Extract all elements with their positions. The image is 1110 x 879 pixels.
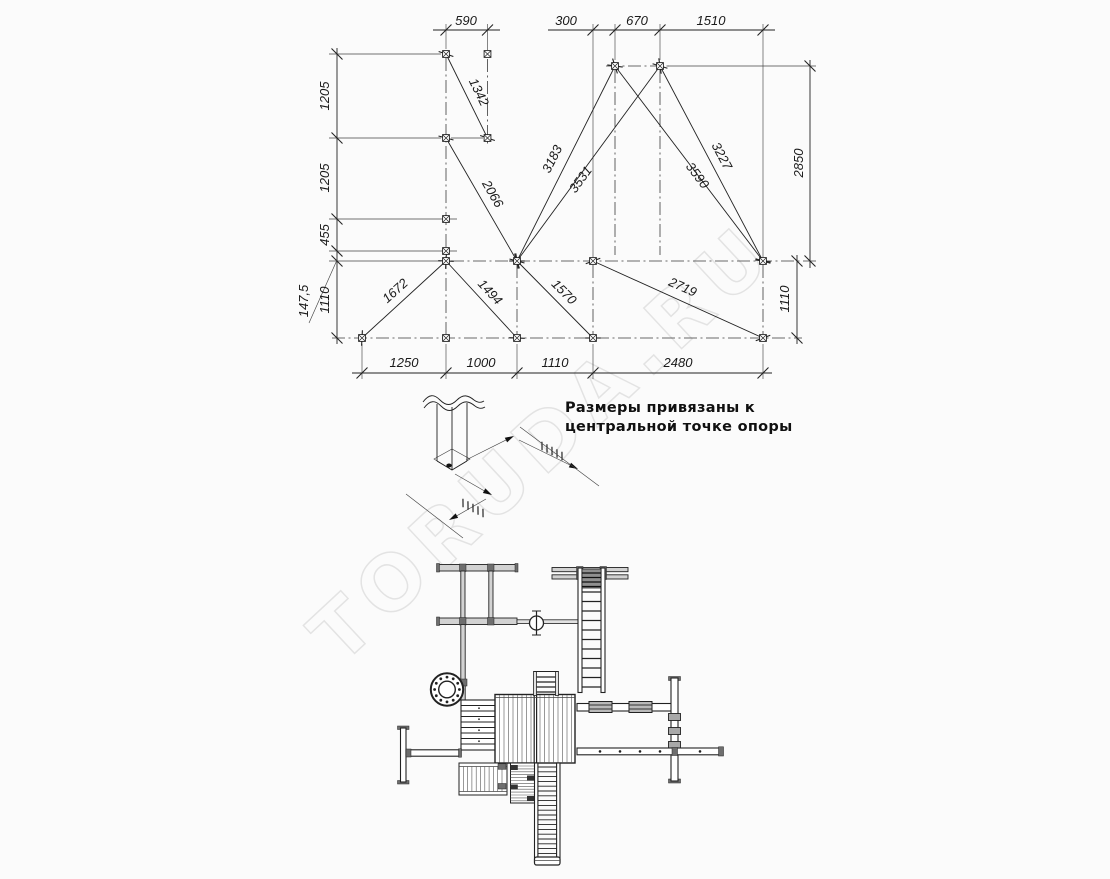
dim-label: 3227 xyxy=(709,140,736,173)
dim-label: 455 xyxy=(317,223,332,245)
dim-label: 3531 xyxy=(566,163,595,195)
dim-label: 1110 xyxy=(777,285,792,313)
dim-label: 1110 xyxy=(542,355,570,370)
step-block xyxy=(511,763,536,803)
access-ladder xyxy=(534,672,559,696)
dim-label: 1342 xyxy=(466,76,492,109)
playground-plan xyxy=(398,564,724,866)
dim-label: 670 xyxy=(626,13,648,28)
dim-label: 1250 xyxy=(390,355,420,370)
balance-beam-right xyxy=(577,747,724,756)
dim-label: 1110 xyxy=(317,286,332,314)
dim-label: 1494 xyxy=(475,276,506,307)
dimension-plan: 590 300 670 1510 1205 1205 455 147,5 111… xyxy=(296,13,816,379)
dim-label: 1205 xyxy=(317,163,332,193)
climbing-ramp xyxy=(459,763,507,795)
dim-label: 1570 xyxy=(549,276,581,308)
dim-label: 3590 xyxy=(683,159,713,192)
dim-label: 2480 xyxy=(663,355,694,370)
dim-label: 590 xyxy=(455,13,477,28)
note-line-2: центральной точке опоры xyxy=(565,419,793,435)
drawing-sheet: TORUDA.RU xyxy=(0,0,1110,879)
slide xyxy=(535,763,561,865)
dim-label: 1672 xyxy=(379,275,411,306)
note-line-1: Размеры привязаны к xyxy=(565,400,755,416)
tire xyxy=(431,673,463,705)
right-post xyxy=(669,677,681,784)
dim-label: 1205 xyxy=(317,81,332,111)
technical-drawing: TORUDA.RU xyxy=(0,0,1110,879)
dimension-ticks xyxy=(332,25,816,379)
dim-label: 3183 xyxy=(539,142,566,175)
stairs xyxy=(461,700,497,750)
dim-label: 147,5 xyxy=(296,284,311,317)
swedish-ladder xyxy=(552,567,628,693)
dim-label: 2850 xyxy=(791,148,806,179)
platform xyxy=(495,695,575,764)
dim-label: 1000 xyxy=(467,355,497,370)
dim-label: 2066 xyxy=(479,177,507,211)
monkey-bars xyxy=(577,702,674,713)
center-point xyxy=(446,464,451,468)
dim-label: 1510 xyxy=(697,13,727,28)
dim-label: 300 xyxy=(555,13,577,28)
pole-marker xyxy=(530,611,544,636)
balance-beam-left xyxy=(398,726,462,784)
